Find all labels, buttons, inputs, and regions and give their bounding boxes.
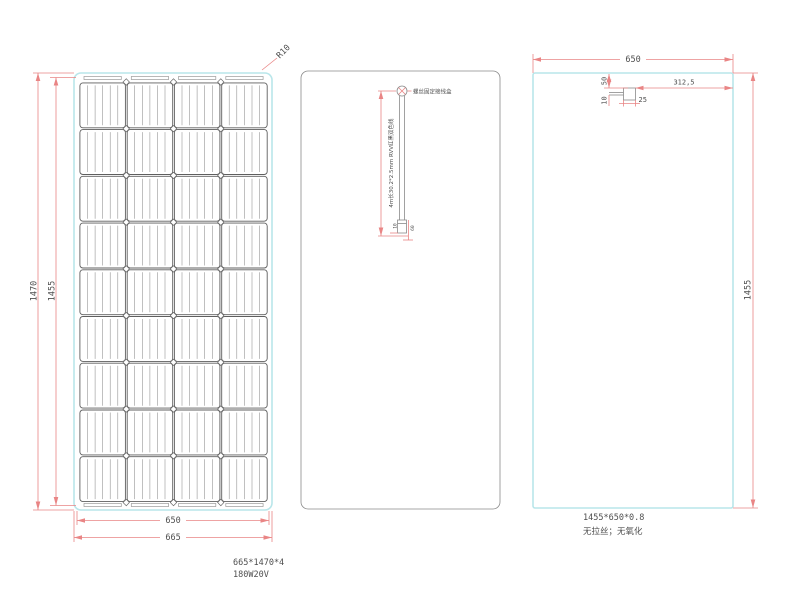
drawing-canvas: 1470 1455 650 665 R10: [0, 0, 800, 600]
dim-text-width-outer: 665: [165, 533, 180, 543]
dim-text-height-outer: 1470: [30, 281, 40, 301]
top-strip: [179, 77, 216, 80]
dim-text-3125: 312,5: [673, 79, 694, 87]
dim-label-width: 650: [620, 53, 646, 65]
back-sheet-outline: [301, 71, 500, 509]
dim-label-connector-b: 60: [410, 225, 416, 231]
dim-label-10: 10: [601, 96, 609, 104]
bottom-strip: [226, 504, 263, 507]
sheet-size-note: 1455*650*0.8: [583, 513, 644, 523]
panel-size-note: 665*1470*4: [233, 558, 284, 568]
back-view: 螺丝固定接线盒 4m长30.2*2.5mm RVV红黑双色线 10 60: [301, 71, 500, 509]
dim-label-650: 650: [160, 514, 186, 526]
side-view: 650 1455 50 10 25 312,5: [533, 53, 758, 537]
dim-label-cable: 4m长30.2*2.5mm RVV红黑双色线: [387, 118, 395, 208]
top-strip: [226, 77, 263, 80]
cell-grid: [80, 77, 267, 507]
dim-text-width: 650: [625, 55, 640, 65]
front-view: 1470 1455 650 665 R10: [28, 43, 293, 543]
cable-spec-text: 4m长30.2*2.5mm RVV红黑双色线: [387, 118, 395, 208]
dim-text-connector-b: 60: [410, 225, 416, 231]
dim-label-50: 50: [601, 77, 609, 85]
junction-cutout-box: [624, 88, 636, 100]
dim-text-25: 25: [639, 96, 647, 104]
sheet-finish-note: 无拉丝；无氧化: [583, 526, 643, 537]
dim-label-665: 665: [160, 531, 186, 543]
bottom-strip: [131, 504, 168, 507]
dim-text-corner-radius: R10: [275, 43, 293, 61]
bottom-strip: [179, 504, 216, 507]
top-strip: [131, 77, 168, 80]
dim-text-height: 1455: [744, 280, 754, 300]
leader-line-r10: [262, 58, 277, 70]
dim-label-1455: 1455: [46, 277, 58, 305]
dim-text-connector-a: 10: [393, 223, 399, 229]
dim-label-1470: 1470: [28, 277, 40, 305]
dim-text-height-inner: 1455: [48, 281, 58, 301]
dim-label-connector-a: 10: [393, 223, 399, 229]
dim-label-r10: R10: [275, 43, 293, 61]
cad-drawing: 1470 1455 650 665 R10: [0, 0, 800, 600]
cable-connector: [398, 220, 407, 233]
dim-label-height: 1455: [742, 276, 754, 304]
dim-text-10: 10: [601, 96, 609, 104]
junction-box-label: 螺丝固定接线盒: [413, 88, 452, 96]
bottom-strip: [84, 504, 121, 507]
dim-text-50: 50: [601, 77, 609, 85]
power-spec-note: 180W20V: [233, 570, 269, 580]
footer-note: 665*1470*4 180W20V: [233, 558, 284, 580]
top-strip: [84, 77, 121, 80]
sheet-outline: [533, 73, 733, 508]
dim-text-width-inner: 650: [165, 516, 180, 526]
